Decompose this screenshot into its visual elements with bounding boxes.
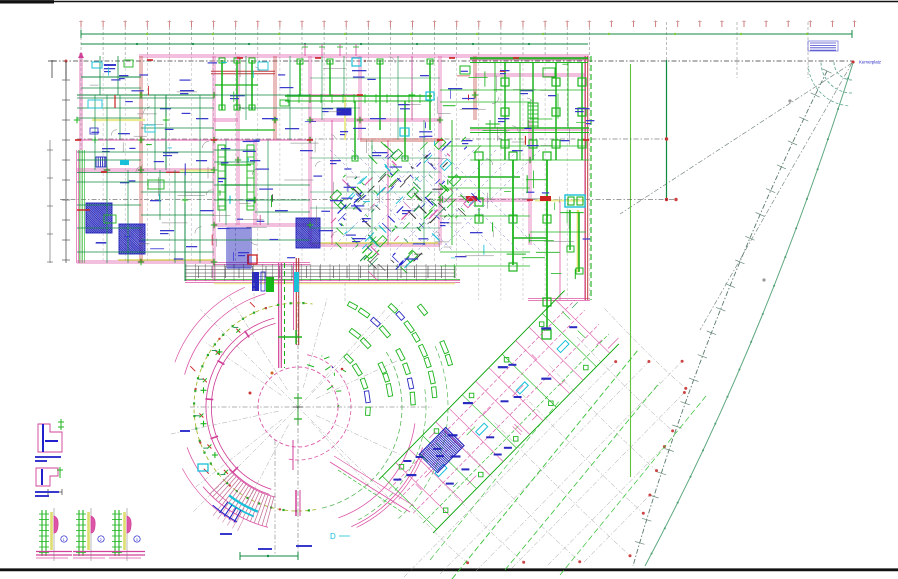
svg-text:1: 1 [63, 538, 65, 542]
svg-text:3: 3 [136, 538, 138, 542]
svg-text:D: D [330, 532, 336, 541]
svg-text:2: 2 [100, 538, 102, 542]
svg-text:Kernerplatz: Kernerplatz [859, 60, 881, 65]
